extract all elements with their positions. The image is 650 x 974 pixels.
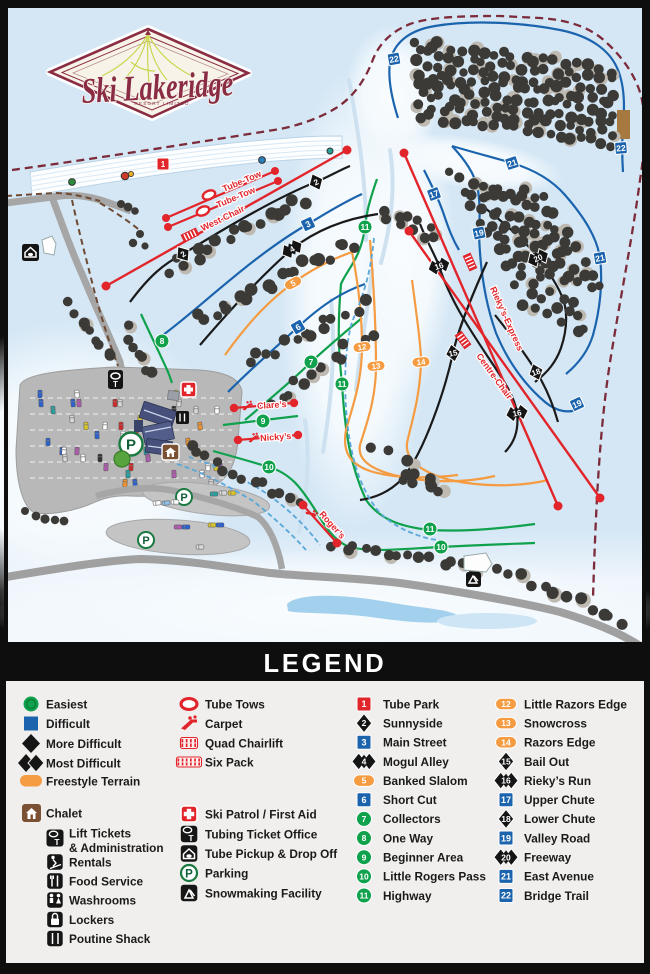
- svg-text:12: 12: [357, 342, 368, 352]
- svg-text:Difficult: Difficult: [46, 717, 90, 731]
- svg-text:5: 5: [362, 776, 367, 786]
- svg-text:21: 21: [594, 252, 605, 264]
- svg-text:21: 21: [501, 872, 511, 882]
- svg-text:16: 16: [501, 776, 511, 786]
- svg-text:Easiest: Easiest: [46, 697, 87, 711]
- svg-text:9: 9: [261, 416, 266, 426]
- svg-text:P: P: [185, 869, 193, 881]
- svg-text:Clare’s: Clare’s: [257, 399, 287, 411]
- svg-text:Parking: Parking: [205, 866, 248, 880]
- svg-text:22: 22: [616, 143, 627, 154]
- svg-text:Little Rogers Pass: Little Rogers Pass: [383, 870, 486, 884]
- svg-text:Valley Road: Valley Road: [524, 831, 590, 845]
- svg-text:Poutine Shack: Poutine Shack: [69, 932, 151, 946]
- svg-text:Highway: Highway: [383, 889, 432, 903]
- svg-text:15: 15: [501, 757, 511, 767]
- svg-text:6: 6: [361, 795, 366, 805]
- svg-text:P: P: [142, 535, 149, 547]
- svg-text:13: 13: [501, 718, 511, 728]
- svg-text:Freestyle Terrain: Freestyle Terrain: [46, 774, 140, 788]
- svg-text:13: 13: [371, 361, 381, 371]
- svg-text:20: 20: [501, 852, 511, 862]
- svg-text:Snowmaking Facility: Snowmaking Facility: [205, 886, 322, 900]
- svg-text:Snowcross: Snowcross: [524, 716, 587, 730]
- svg-text:Six Pack: Six Pack: [205, 755, 254, 769]
- svg-text:Tube Park: Tube Park: [383, 697, 440, 711]
- svg-text:One Way: One Way: [383, 831, 433, 845]
- svg-text:11: 11: [338, 379, 347, 389]
- svg-text:More Difficult: More Difficult: [46, 737, 121, 751]
- svg-text:T: T: [54, 837, 60, 847]
- svg-text:11: 11: [360, 891, 369, 901]
- svg-text:Carpet: Carpet: [205, 717, 242, 731]
- svg-text:8: 8: [362, 833, 367, 843]
- svg-text:Little Razors Edge: Little Razors Edge: [524, 697, 627, 711]
- svg-text:1: 1: [161, 160, 166, 169]
- svg-text:Beginner Area: Beginner Area: [383, 851, 464, 865]
- svg-text:19: 19: [501, 833, 511, 843]
- svg-text:Mogul Alley: Mogul Alley: [383, 755, 449, 769]
- svg-text:Lockers: Lockers: [69, 913, 115, 927]
- svg-text:Quad Chairlift: Quad Chairlift: [205, 736, 283, 750]
- svg-text:9: 9: [362, 852, 367, 862]
- svg-text:2: 2: [362, 718, 367, 728]
- svg-text:12: 12: [501, 699, 511, 709]
- svg-text:Razors Edge: Razors Edge: [524, 736, 596, 750]
- svg-text:Sunnyside: Sunnyside: [383, 716, 443, 730]
- svg-text:Rieky’s Run: Rieky’s Run: [524, 774, 591, 788]
- svg-text:Lift Tickets: Lift Tickets: [69, 826, 131, 840]
- svg-text:P: P: [126, 437, 136, 454]
- svg-text:Bridge Trail: Bridge Trail: [524, 889, 589, 903]
- svg-text:10: 10: [359, 871, 369, 881]
- svg-text:Banked Slalom: Banked Slalom: [383, 774, 468, 788]
- svg-text:Upper Chute: Upper Chute: [524, 793, 595, 807]
- svg-text:Chalet: Chalet: [46, 806, 82, 820]
- svg-text:& Administration: & Administration: [69, 841, 164, 855]
- svg-text:14: 14: [501, 737, 511, 747]
- svg-text:11: 11: [361, 222, 370, 232]
- svg-text:T: T: [188, 833, 194, 843]
- svg-text:RESORT LIMITED: RESORT LIMITED: [134, 101, 189, 106]
- svg-text:17: 17: [501, 795, 511, 805]
- svg-text:Bail Out: Bail Out: [524, 755, 569, 769]
- svg-text:Ski Patrol / First Aid: Ski Patrol / First Aid: [205, 807, 317, 821]
- svg-text:Main Street: Main Street: [383, 736, 447, 750]
- svg-text:Tube Tows: Tube Tows: [205, 697, 265, 711]
- svg-text:22: 22: [388, 53, 399, 65]
- svg-text:8: 8: [160, 336, 165, 346]
- svg-text:3: 3: [361, 738, 366, 748]
- svg-text:Tube Pickup & Drop Off: Tube Pickup & Drop Off: [205, 847, 337, 861]
- svg-text:18: 18: [501, 814, 511, 824]
- svg-text:10: 10: [436, 542, 446, 552]
- svg-text:14: 14: [416, 357, 426, 367]
- svg-text:Tubing Ticket Office: Tubing Ticket Office: [205, 827, 318, 841]
- svg-text:Washrooms: Washrooms: [69, 893, 137, 907]
- svg-text:Lower Chute: Lower Chute: [524, 812, 596, 826]
- svg-text:10: 10: [264, 462, 274, 472]
- svg-text:Short Cut: Short Cut: [383, 793, 437, 807]
- svg-text:Food Service: Food Service: [69, 874, 144, 888]
- svg-text:7: 7: [362, 814, 367, 824]
- svg-text:East Avenue: East Avenue: [524, 870, 594, 884]
- svg-text:P: P: [180, 492, 187, 504]
- svg-text:LEGEND: LEGEND: [263, 650, 386, 678]
- svg-text:Collectors: Collectors: [383, 812, 441, 826]
- svg-text:T: T: [113, 380, 118, 389]
- svg-text:22: 22: [501, 891, 511, 901]
- svg-text:Freeway: Freeway: [524, 851, 572, 865]
- svg-text:Most Difficult: Most Difficult: [46, 756, 121, 770]
- svg-text:11: 11: [426, 524, 435, 534]
- svg-text:4: 4: [362, 757, 367, 767]
- svg-text:1: 1: [361, 699, 366, 709]
- svg-text:Rentals: Rentals: [69, 855, 112, 869]
- svg-text:7: 7: [309, 357, 314, 367]
